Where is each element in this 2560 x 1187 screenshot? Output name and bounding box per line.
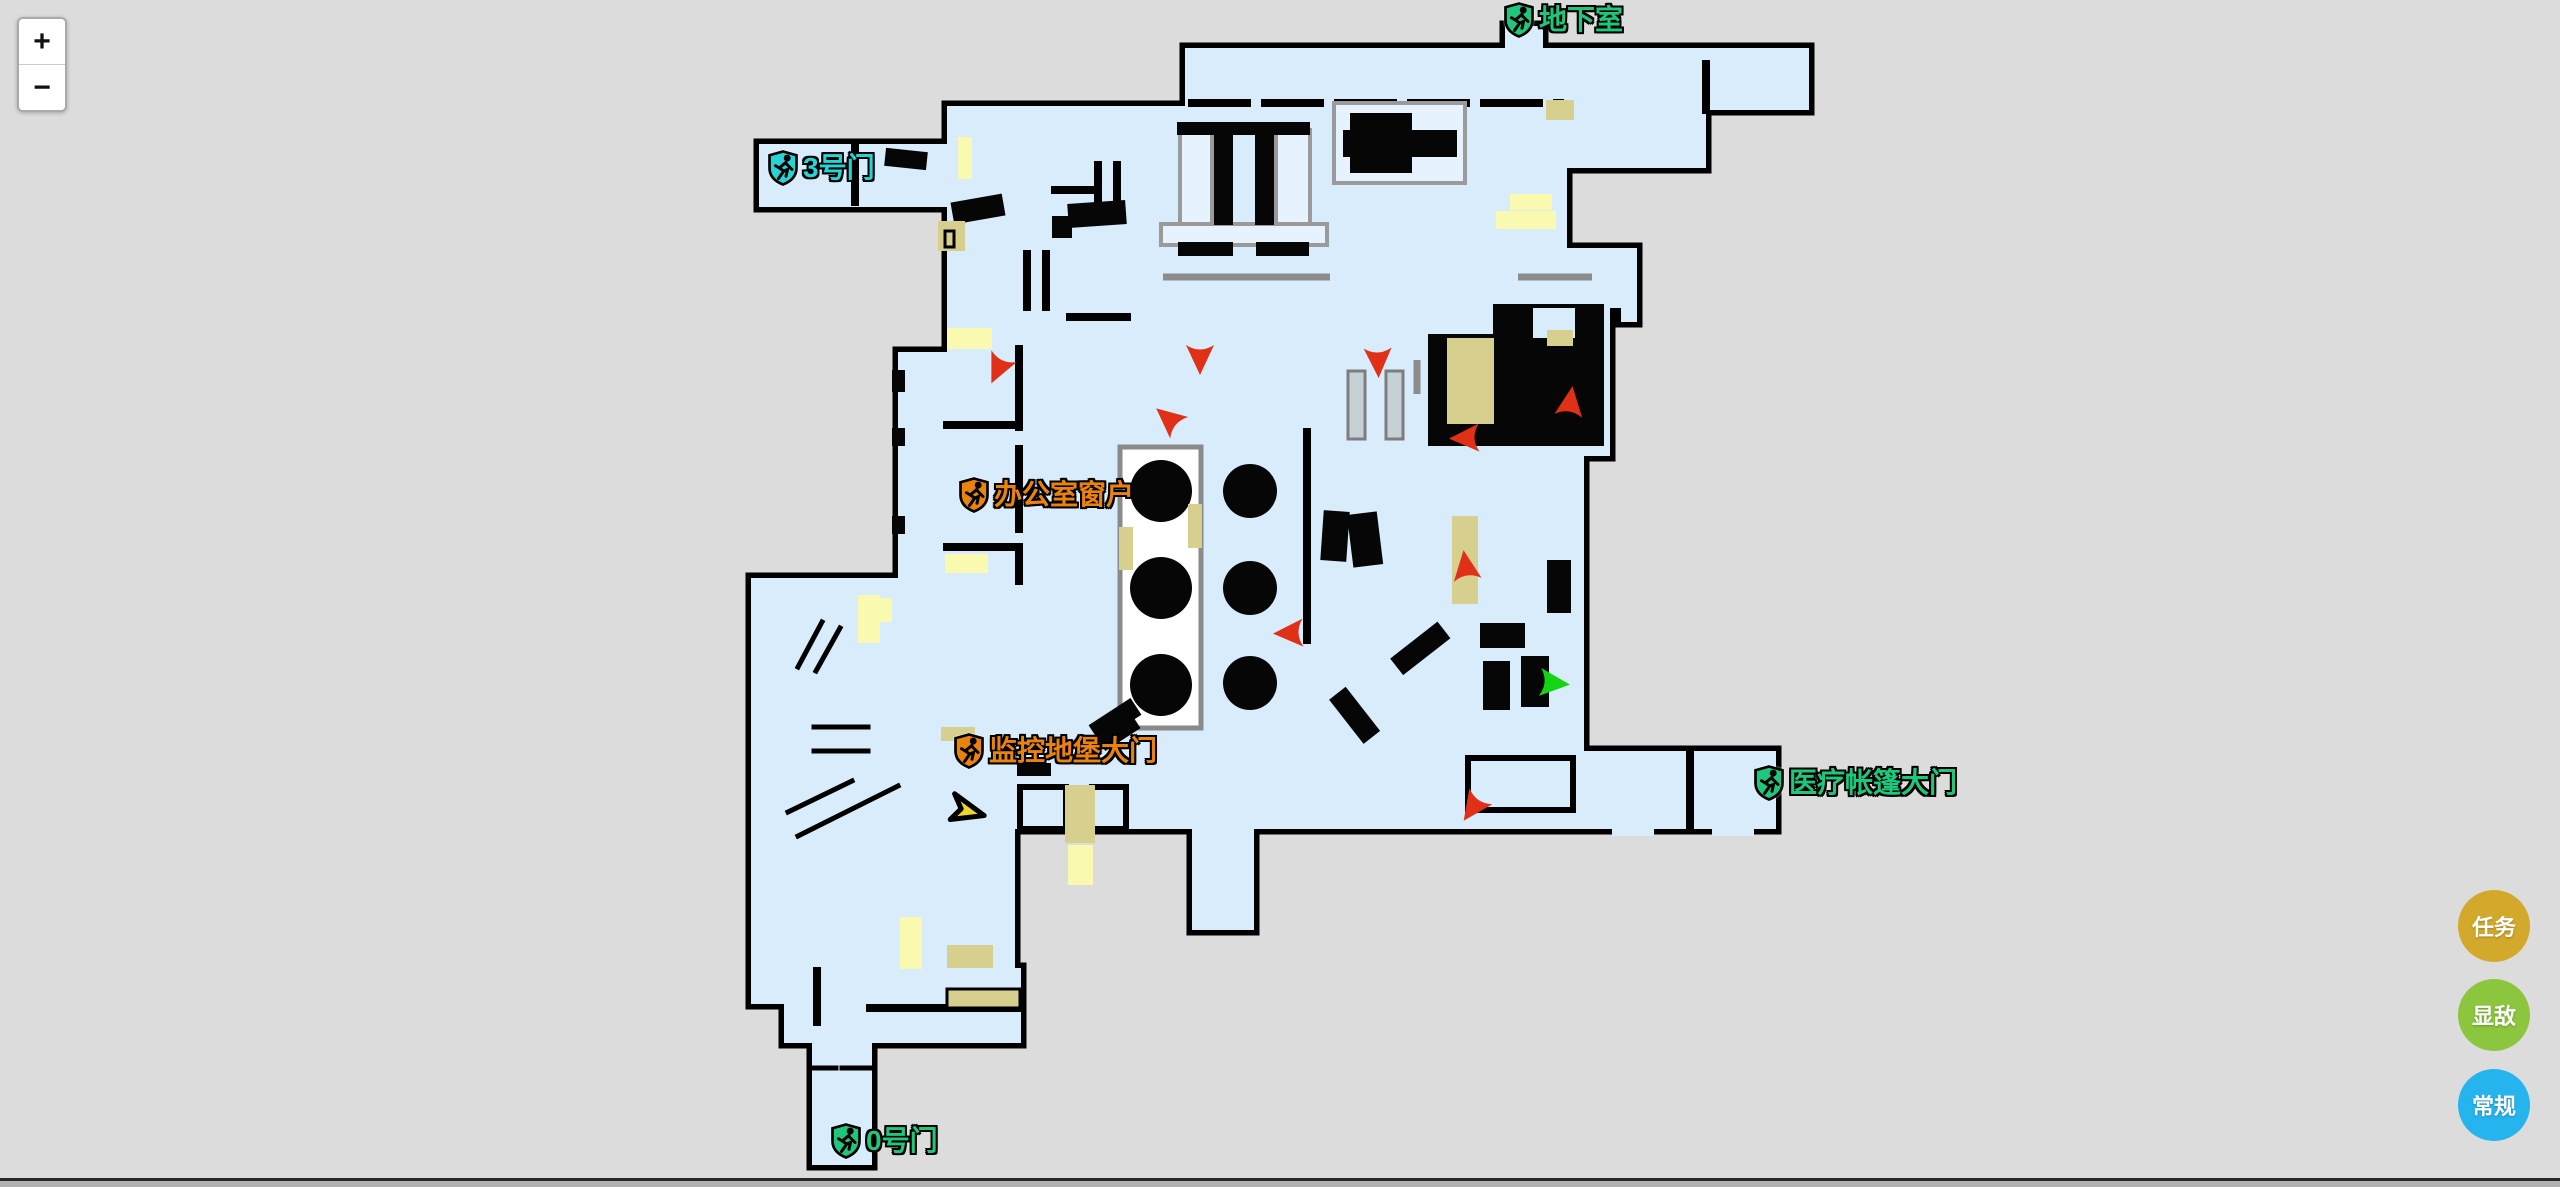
basement-exit-label[interactable]: 地下室 (1504, 2, 1623, 38)
general-button[interactable]: 常规 (2458, 1069, 2530, 1141)
gate-0-exit-label[interactable]: 0号门 (831, 1123, 938, 1159)
exit-label-text: 0号门 (866, 1127, 938, 1155)
map-viewer-page: { "page": { "background": "#dcdcdc", "bo… (0, 0, 2560, 1187)
round-machines-table (1119, 447, 1277, 728)
medical-tent-exit-label[interactable]: 医疗帐篷大门 (1754, 765, 1957, 801)
exit-shield-icon (768, 150, 798, 186)
office-window-exit-label[interactable]: 办公室窗户 (959, 477, 1134, 513)
exit-label-text: 地下室 (1539, 6, 1623, 34)
zoom-out-button[interactable]: − (19, 65, 65, 110)
exit-label-text: 3号门 (803, 154, 875, 182)
game-map[interactable] (0, 0, 2560, 1187)
exit-shield-icon (1504, 2, 1534, 38)
show-enemies-button[interactable]: 显敌 (2458, 979, 2530, 1051)
gate-3-exit-label[interactable]: 3号门 (768, 150, 875, 186)
exit-label-text: 办公室窗户 (994, 481, 1134, 509)
exit-label-text: 医疗帐篷大门 (1789, 769, 1957, 797)
zoom-control: + − (17, 17, 67, 112)
exit-shield-icon (1754, 765, 1784, 801)
exit-shield-icon (831, 1123, 861, 1159)
exit-shield-icon (959, 477, 989, 513)
exit-label-text: 监控地堡大门 (989, 737, 1157, 765)
bottom-bar (0, 1178, 2560, 1187)
zoom-in-button[interactable]: + (19, 19, 65, 65)
bunker-gate-exit-label[interactable]: 监控地堡大门 (954, 733, 1157, 769)
exit-shield-icon (954, 733, 984, 769)
tasks-button[interactable]: 任务 (2458, 890, 2530, 962)
